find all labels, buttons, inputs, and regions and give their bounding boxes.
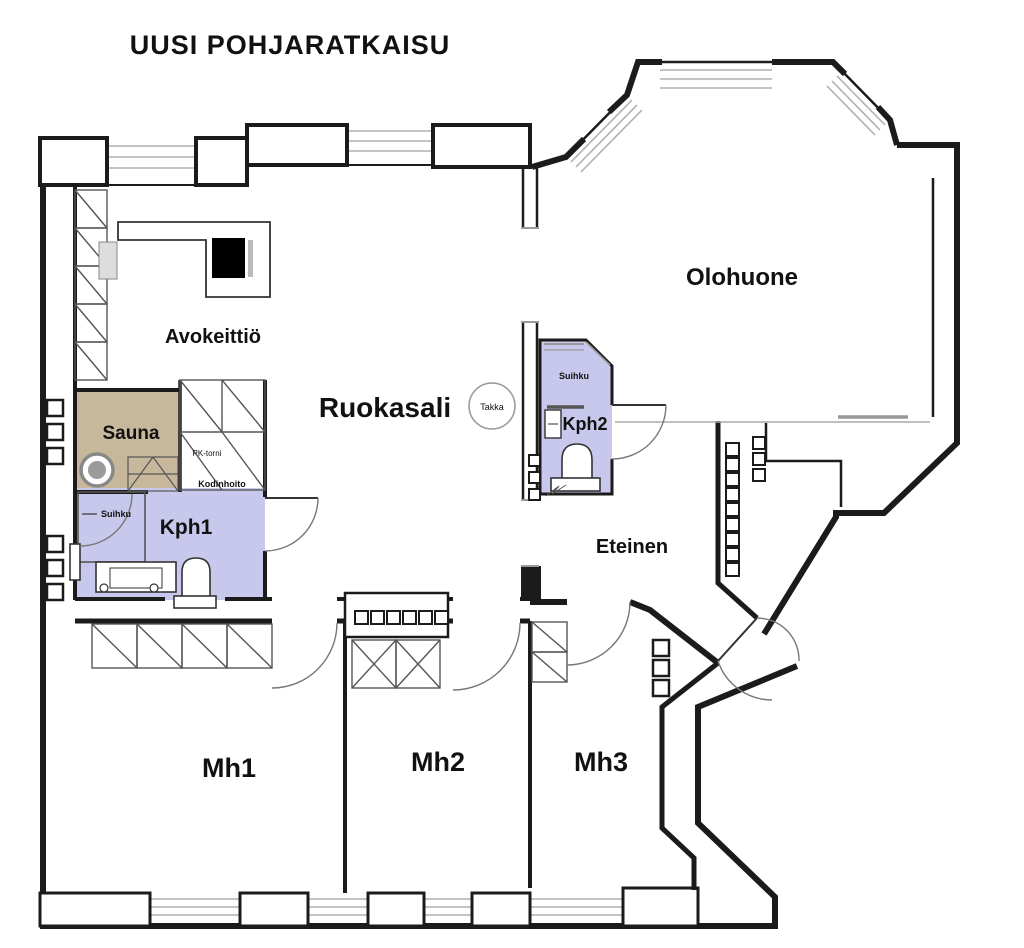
fridge: [99, 242, 117, 279]
floor-plan-page: UUSI POHJARATKAISU Avokeittiö Ruokasali …: [0, 0, 1024, 948]
kph1-window: [70, 544, 80, 580]
room-label-avokeittio: Avokeittiö: [165, 326, 261, 348]
mh3-wardrobes: [532, 622, 567, 682]
stove-side-panel: [248, 240, 253, 277]
vanity-unit: [96, 562, 176, 592]
top-wall-piers: [40, 125, 530, 185]
kitchen-tall-cabinets: [75, 190, 107, 380]
room-label-kph2: Kph2: [563, 414, 608, 434]
room-label-ruokasali: Ruokasali: [319, 392, 451, 423]
room-label-sauna: Sauna: [102, 423, 159, 444]
floor-plan-drawing: UUSI POHJARATKAISU Avokeittiö Ruokasali …: [0, 0, 1024, 948]
room-label-kph1: Kph1: [160, 516, 213, 539]
room-label-olohuone: Olohuone: [686, 264, 798, 291]
room-label-mh3: Mh3: [574, 747, 628, 777]
room-fills: [75, 340, 612, 600]
room-label-mh2: Mh2: [411, 747, 465, 777]
stove: [212, 238, 245, 278]
shower-label-kph1: Suihku: [101, 509, 131, 519]
utility-label: Kodinhoito: [198, 479, 246, 489]
kitchen-counter: [118, 222, 270, 297]
laundry-tower-label: PK-torni: [193, 449, 222, 458]
shower-label-kph2: Suihku: [559, 371, 589, 381]
floor-step-lines: [615, 417, 930, 422]
utility-closets: [180, 380, 265, 490]
room-label-eteinen: Eteinen: [596, 536, 668, 558]
sauna-stove-core: [88, 461, 106, 479]
fireplace-label: Takka: [480, 402, 504, 412]
room-label-mh1: Mh1: [202, 753, 256, 783]
mh1-wardrobes: [92, 624, 272, 668]
page-title: UUSI POHJARATKAISU: [130, 30, 451, 60]
mh2-wardrobes: [352, 640, 440, 688]
